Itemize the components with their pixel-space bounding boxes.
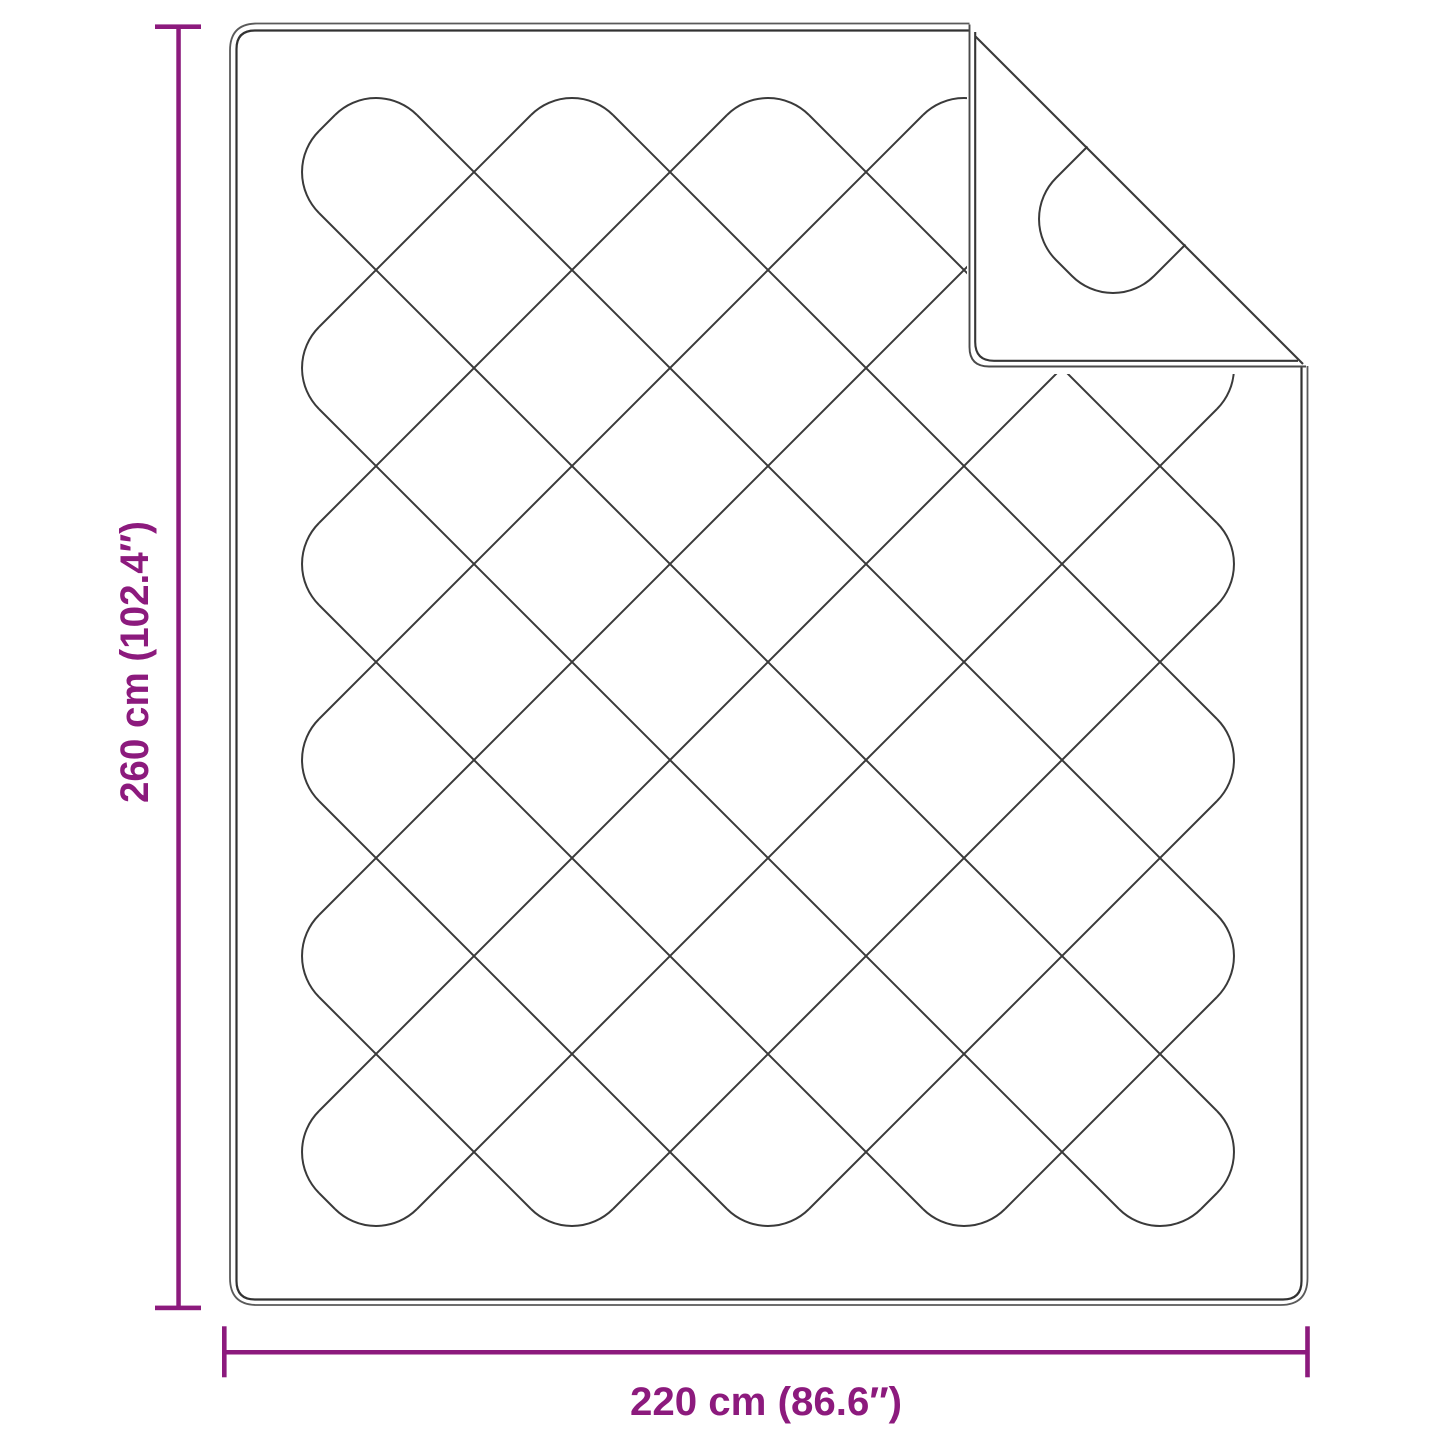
svg-text:260 cm (102.4″): 260 cm (102.4″): [113, 521, 157, 803]
svg-text:220 cm (86.6″): 220 cm (86.6″): [630, 1380, 902, 1424]
